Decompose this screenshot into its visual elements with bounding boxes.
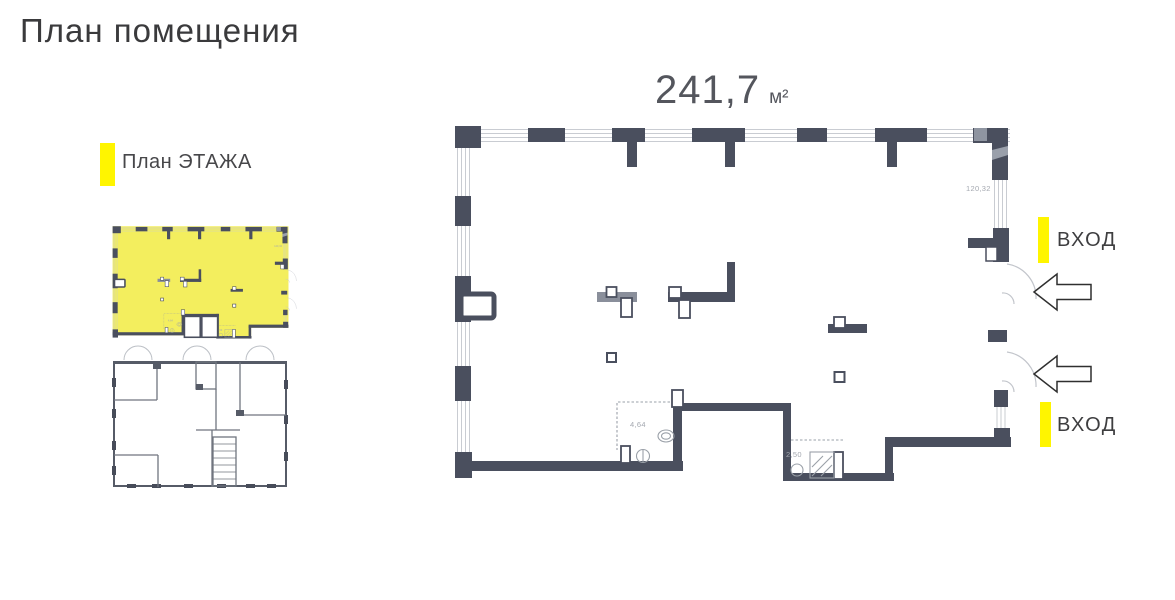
page-title: План помещения (20, 12, 300, 50)
thumbnail-lower-floor (112, 346, 288, 488)
legend-label: План ЭТАЖА (122, 151, 252, 174)
entrance-marker (1038, 217, 1049, 263)
area-unit: м² (769, 87, 788, 109)
floor-thumbnail[interactable] (103, 218, 298, 496)
entrance-arrow-icon (1034, 356, 1091, 392)
entrance-marker (1040, 402, 1051, 447)
entrance-label: ВХОД (1057, 229, 1117, 252)
area-label: 241,7 м² (655, 68, 789, 113)
elevator-shafts (184, 316, 217, 337)
entrance-arrow-icon (1034, 274, 1091, 310)
area-value: 241,7 (655, 68, 760, 113)
legend-marker (100, 143, 115, 186)
entrance-label: ВХОД (1057, 414, 1117, 437)
main-floor-plan (450, 115, 1175, 500)
